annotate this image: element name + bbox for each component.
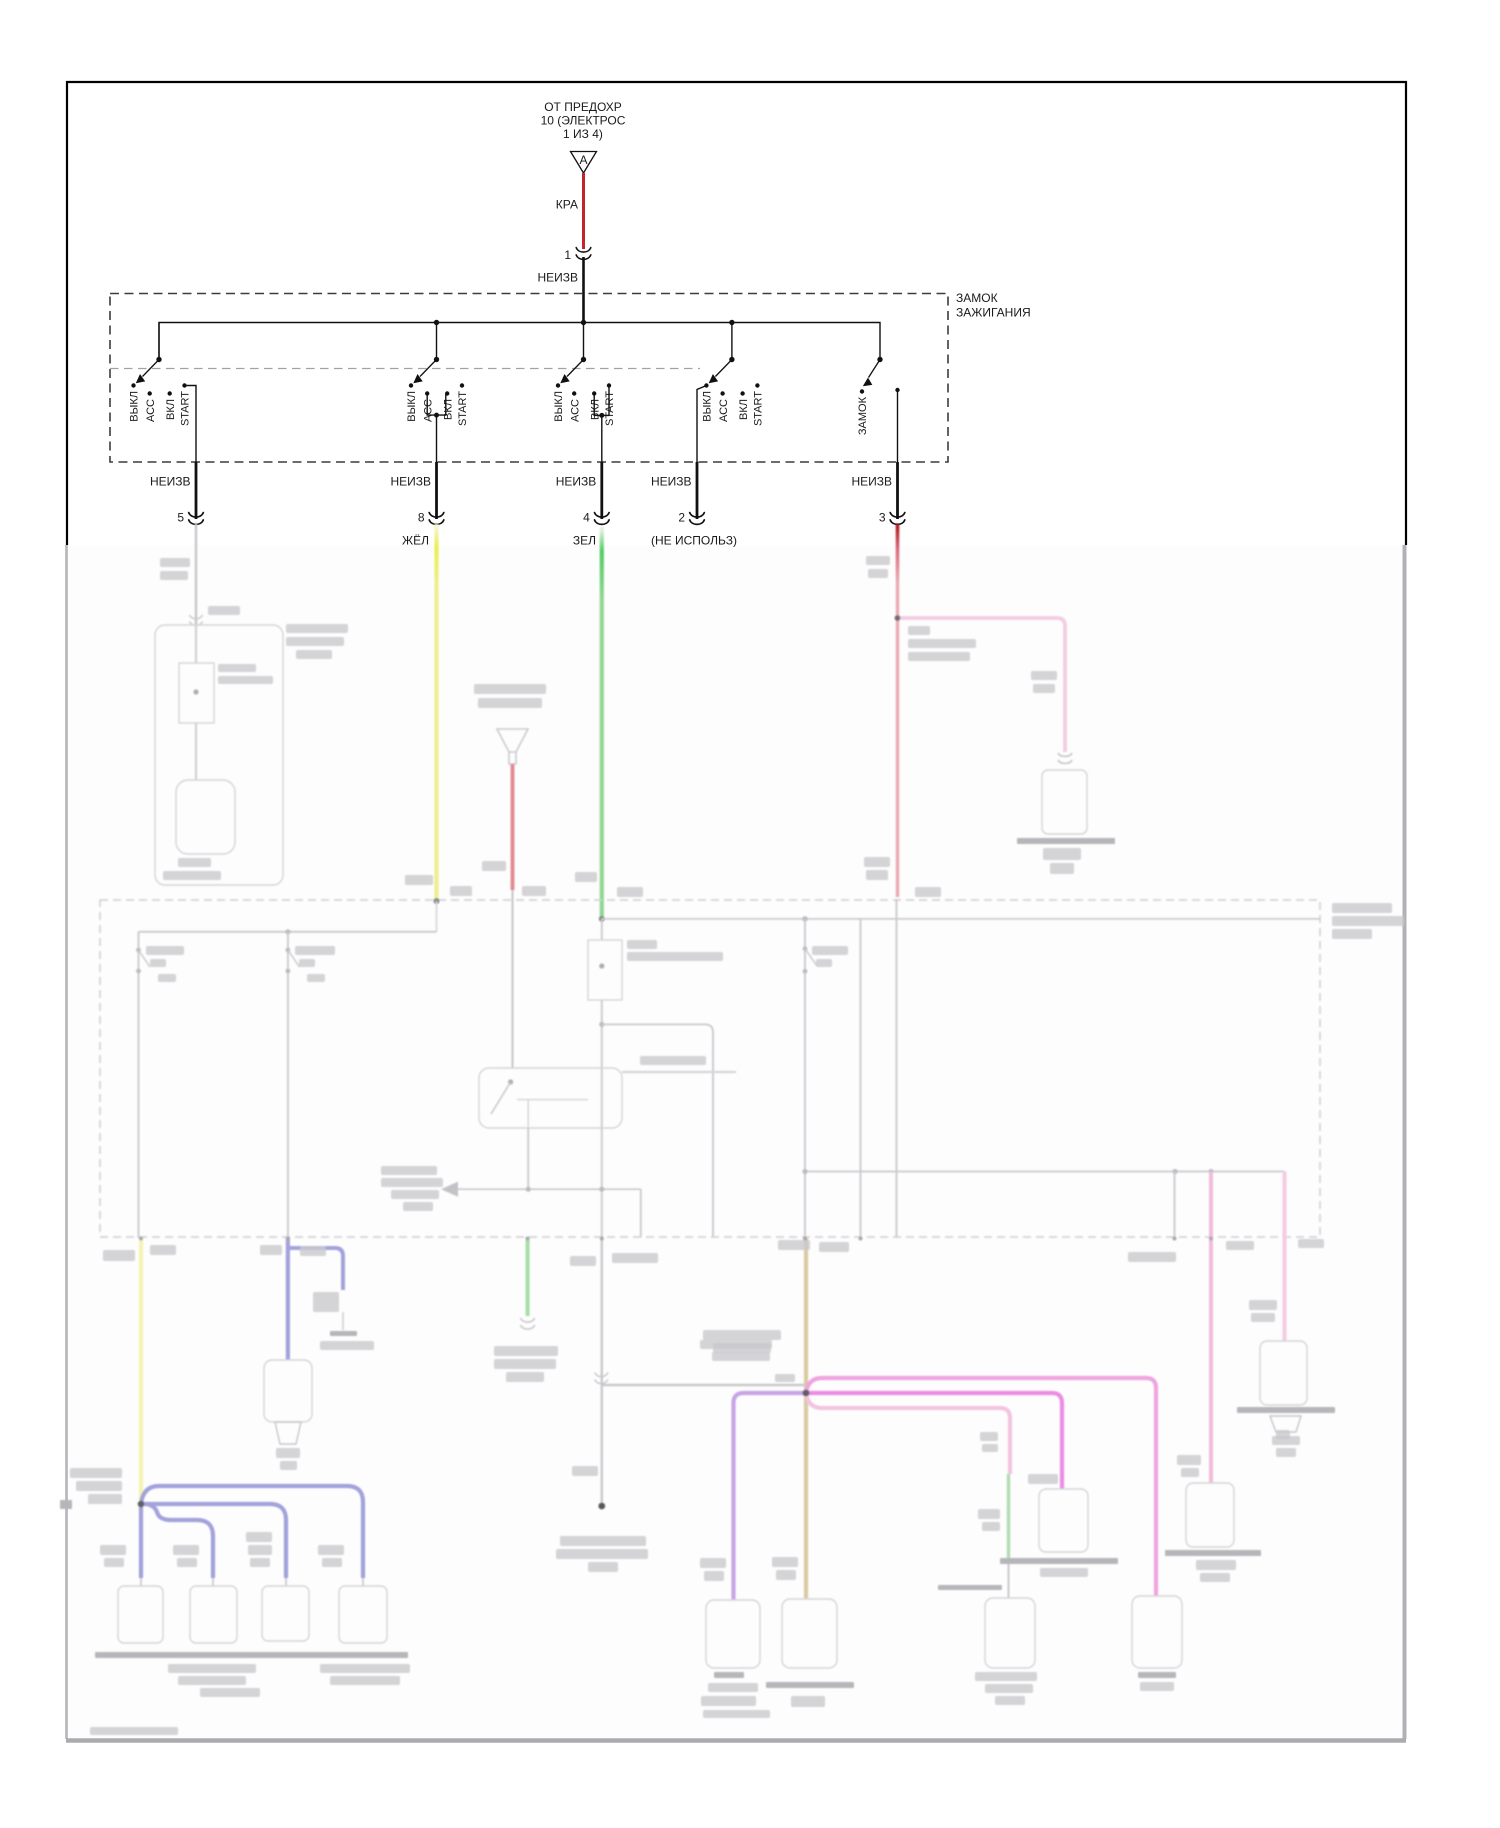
svg-text:ЗАМОК: ЗАМОК [857, 396, 869, 435]
svg-text:ВКЛ: ВКЛ [165, 399, 177, 420]
svg-text:ЗАМОК: ЗАМОК [956, 291, 998, 305]
svg-text:START: START [180, 391, 192, 426]
svg-text:НЕИЗВ: НЕИЗВ [150, 475, 191, 489]
svg-text:КРА: КРА [556, 198, 578, 212]
svg-text:START: START [753, 391, 765, 426]
svg-text:НЕИЗВ: НЕИЗВ [537, 271, 578, 285]
svg-text:1 ИЗ 4): 1 ИЗ 4) [563, 127, 603, 141]
svg-text:10 (ЭЛЕКТРОС: 10 (ЭЛЕКТРОС [541, 114, 626, 128]
svg-text:8: 8 [418, 511, 425, 525]
svg-text:АСС: АСС [718, 399, 730, 422]
svg-text:ВЫКЛ: ВЫКЛ [553, 391, 565, 422]
svg-text:START: START [604, 391, 616, 426]
svg-text:ВКЛ: ВКЛ [442, 399, 454, 420]
svg-text:ВЫКЛ: ВЫКЛ [406, 391, 418, 422]
svg-text:НЕИЗВ: НЕИЗВ [851, 475, 892, 489]
svg-text:АСС: АСС [569, 399, 581, 422]
svg-text:ЖЁЛ: ЖЁЛ [402, 534, 429, 548]
svg-text:A: A [579, 153, 587, 167]
svg-text:5: 5 [177, 511, 184, 525]
svg-text:(НЕ ИСПОЛЬЗ): (НЕ ИСПОЛЬЗ) [651, 534, 737, 548]
svg-text:АСС: АСС [145, 399, 157, 422]
svg-text:4: 4 [583, 511, 590, 525]
svg-text:НЕИЗВ: НЕИЗВ [390, 475, 431, 489]
svg-text:2: 2 [678, 511, 685, 525]
svg-text:НЕИЗВ: НЕИЗВ [651, 475, 692, 489]
svg-text:ВЫКЛ: ВЫКЛ [702, 391, 714, 422]
svg-text:ОТ ПРЕДОХР: ОТ ПРЕДОХР [544, 100, 622, 114]
svg-text:ЗЕЛ: ЗЕЛ [573, 534, 596, 548]
svg-text:3: 3 [879, 511, 886, 525]
svg-text:ЗАЖИГАНИЯ: ЗАЖИГАНИЯ [956, 306, 1031, 320]
svg-text:ВКЛ: ВКЛ [589, 399, 601, 420]
svg-text:1: 1 [564, 248, 571, 262]
svg-text:ВЫКЛ: ВЫКЛ [129, 391, 141, 422]
svg-text:НЕИЗВ: НЕИЗВ [556, 475, 597, 489]
svg-text:START: START [457, 391, 469, 426]
svg-text:ВКЛ: ВКЛ [738, 399, 750, 420]
svg-text:АСС: АСС [422, 399, 434, 422]
